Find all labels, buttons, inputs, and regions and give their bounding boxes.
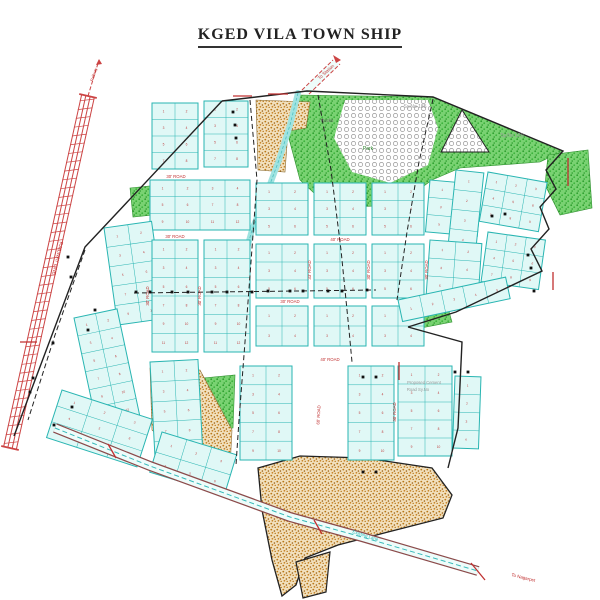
railway-tie bbox=[27, 336, 42, 338]
plot-block: 12345678910 bbox=[348, 366, 394, 460]
plot-number: 3 bbox=[384, 334, 386, 338]
plot-number: 3 bbox=[326, 207, 328, 211]
township-map-page: KGED VILA TOWN SHIP bbox=[0, 0, 600, 600]
survey-dot bbox=[491, 215, 494, 218]
plot-block: 123456789101112 bbox=[152, 240, 198, 352]
plot-number: 5 bbox=[359, 411, 361, 415]
plot-number: 1 bbox=[384, 190, 386, 194]
survey-dot bbox=[467, 371, 470, 374]
survey-dot bbox=[533, 290, 536, 293]
railway-tie bbox=[74, 125, 89, 127]
plot-number: 3 bbox=[384, 207, 386, 211]
plot-number: 4 bbox=[382, 392, 384, 396]
plot-number: 2 bbox=[438, 373, 440, 377]
plot-number: 11 bbox=[214, 341, 218, 345]
survey-dot bbox=[454, 371, 457, 374]
survey-dot bbox=[530, 267, 533, 270]
plot-number: 3 bbox=[268, 207, 270, 211]
map-label: 30' ROAD bbox=[197, 286, 202, 305]
railway-arrowhead bbox=[96, 59, 102, 65]
plot-number: 8 bbox=[186, 304, 188, 308]
plot-number: 6 bbox=[352, 225, 354, 229]
plot-number: 10 bbox=[437, 445, 441, 449]
railway-tie bbox=[56, 204, 71, 206]
plot-number: 1 bbox=[326, 314, 328, 318]
plot-number: 9 bbox=[359, 449, 361, 453]
plot-number: 1 bbox=[268, 190, 270, 194]
plot-number: 4 bbox=[294, 269, 296, 273]
plot-number: 8 bbox=[438, 427, 440, 431]
survey-dot bbox=[67, 256, 70, 259]
plot-number: 1 bbox=[384, 314, 386, 318]
railway-tie bbox=[64, 169, 79, 171]
plot-number: 9 bbox=[411, 445, 413, 449]
plot-number: 5 bbox=[215, 285, 217, 289]
plot-number: 6 bbox=[382, 411, 384, 415]
map-label: Railway bbox=[89, 67, 98, 82]
railway-tie bbox=[62, 178, 77, 180]
survey-dot bbox=[302, 290, 305, 293]
plot-block: 12345678 bbox=[152, 103, 198, 169]
plot-number: 6 bbox=[278, 411, 280, 415]
plot-block: 1234 bbox=[256, 306, 308, 346]
railway-tie bbox=[66, 160, 81, 162]
plot-number: 1 bbox=[411, 373, 413, 377]
plot-number: 1 bbox=[252, 374, 254, 378]
plot-number: 9 bbox=[163, 322, 165, 326]
plot-number: 7 bbox=[252, 430, 254, 434]
plot-number: 2 bbox=[352, 251, 354, 255]
railway-tie bbox=[51, 231, 66, 233]
map-label: Road Sy.No bbox=[407, 387, 430, 392]
railway-tie bbox=[17, 380, 32, 382]
survey-dot bbox=[232, 111, 235, 114]
survey-dot bbox=[32, 377, 35, 380]
survey-dot bbox=[70, 276, 73, 279]
plot-block: 1234 bbox=[452, 376, 480, 449]
railway-tie bbox=[25, 345, 40, 347]
plot-number: 7 bbox=[411, 427, 413, 431]
plot-number: 5 bbox=[214, 140, 216, 144]
plot-number: 6 bbox=[410, 287, 412, 291]
railway-tie bbox=[31, 319, 46, 321]
survey-dot bbox=[211, 291, 214, 294]
plot-block: 12345678 bbox=[204, 101, 248, 167]
plot-number: 9 bbox=[215, 322, 217, 326]
railway-tie bbox=[4, 442, 19, 444]
plot-number: 2 bbox=[236, 107, 238, 111]
plot-number: 6 bbox=[294, 225, 296, 229]
plot-number: 1 bbox=[326, 251, 328, 255]
plot-number: 4 bbox=[294, 334, 296, 338]
plot-number: 2 bbox=[186, 248, 188, 252]
plot-number: 4 bbox=[294, 207, 296, 211]
plot-number: 1 bbox=[268, 251, 270, 255]
township-map: 1234567812345678123456789101112123456789… bbox=[0, 0, 600, 600]
railway-tie bbox=[8, 424, 23, 426]
railway-tie bbox=[23, 354, 38, 356]
plot-number: 10 bbox=[237, 322, 241, 326]
plot-number: 10 bbox=[185, 322, 189, 326]
map-label: Proposed Cement bbox=[407, 380, 442, 385]
railway-tie bbox=[72, 134, 87, 136]
map-label: Park bbox=[363, 146, 374, 152]
plot-number: 7 bbox=[215, 304, 217, 308]
railway-tie bbox=[58, 196, 73, 198]
survey-dot bbox=[527, 254, 530, 257]
plot-number: 6 bbox=[236, 140, 238, 144]
survey-dot bbox=[171, 291, 174, 294]
plot-number: 2 bbox=[186, 109, 188, 113]
survey-dot bbox=[362, 376, 365, 379]
plot-number: 3 bbox=[359, 392, 361, 396]
plot-number: 5 bbox=[163, 285, 165, 289]
railway-layer bbox=[1, 59, 102, 450]
map-label: 30' ROAD bbox=[424, 260, 429, 279]
survey-dot bbox=[341, 290, 344, 293]
plot-number: 6 bbox=[410, 225, 412, 229]
plot-number: 4 bbox=[186, 266, 188, 270]
plot-number: 5 bbox=[326, 225, 328, 229]
plot-number: 6 bbox=[187, 203, 189, 207]
survey-dot bbox=[71, 406, 74, 409]
plot-number: 2 bbox=[238, 248, 240, 252]
plot-number: 6 bbox=[238, 285, 240, 289]
plot-number: 1 bbox=[268, 314, 270, 318]
survey-dot bbox=[289, 290, 292, 293]
railway-tie bbox=[68, 152, 83, 154]
plot-number: 2 bbox=[410, 190, 412, 194]
plot-number: 8 bbox=[236, 157, 238, 161]
plot-block: 123456789 bbox=[479, 172, 547, 232]
plot-number: 6 bbox=[438, 409, 440, 413]
survey-dot bbox=[187, 291, 190, 294]
map-label: 30' ROAD bbox=[166, 174, 185, 179]
plot-number: 4 bbox=[236, 124, 238, 128]
plot-number: 4 bbox=[186, 126, 188, 130]
survey-dot bbox=[267, 290, 270, 293]
plot-number: 3 bbox=[212, 187, 214, 191]
plot-number: 2 bbox=[294, 251, 296, 255]
plot-number: 2 bbox=[382, 374, 384, 378]
plot-number: 6 bbox=[186, 142, 188, 146]
plot-block: 1234 bbox=[314, 306, 366, 346]
plot-number: 1 bbox=[326, 190, 328, 194]
map-label: 30' ROAD bbox=[280, 299, 299, 304]
sand-area bbox=[258, 456, 452, 596]
railway-tie bbox=[70, 143, 85, 145]
railway-tie bbox=[35, 301, 50, 303]
plot-number: 4 bbox=[410, 269, 412, 273]
survey-dot bbox=[52, 342, 55, 345]
plot-block: 123456 bbox=[314, 183, 366, 235]
plot-number: 6 bbox=[186, 285, 188, 289]
map-label: 30' ROAD bbox=[165, 234, 184, 239]
plot-number: 8 bbox=[382, 430, 384, 434]
map-label: Rocks bbox=[321, 118, 334, 123]
railway-tie bbox=[53, 222, 68, 224]
railway-tie bbox=[76, 117, 91, 119]
plot-number: 2 bbox=[410, 251, 412, 255]
plot-number: 3 bbox=[384, 269, 386, 273]
plot-number: 2 bbox=[187, 187, 189, 191]
plot-number: 8 bbox=[237, 203, 239, 207]
survey-dot bbox=[366, 289, 369, 292]
plot-number: 5 bbox=[411, 409, 413, 413]
survey-dot bbox=[226, 291, 229, 294]
survey-dot bbox=[135, 291, 138, 294]
plot-number: 4 bbox=[237, 187, 239, 191]
railway-tie bbox=[29, 327, 44, 329]
survey-dot bbox=[504, 213, 507, 216]
railway-tie bbox=[60, 187, 75, 189]
plot-number: 1 bbox=[162, 187, 164, 191]
plot-number: 1 bbox=[384, 251, 386, 255]
plot-number: 4 bbox=[352, 334, 354, 338]
plot-number: 1 bbox=[359, 374, 361, 378]
plot-number: 10 bbox=[381, 449, 385, 453]
map-label: Sy.No 185 bbox=[404, 104, 427, 110]
plot-number: 2 bbox=[278, 374, 280, 378]
plot-number: 1 bbox=[163, 248, 165, 252]
plot-number: 1 bbox=[215, 248, 217, 252]
plot-number: 8 bbox=[186, 159, 188, 163]
plot-number: 12 bbox=[237, 341, 241, 345]
plot-number: 10 bbox=[277, 449, 281, 453]
plot-block: 123456789101112 bbox=[204, 240, 250, 352]
plot-block: 123456 bbox=[256, 244, 308, 298]
map-label: 60' ROAD bbox=[316, 405, 322, 424]
plot-number: 4 bbox=[352, 207, 354, 211]
survey-dot bbox=[94, 309, 97, 312]
plot-number: 4 bbox=[438, 391, 440, 395]
plot-number: 3 bbox=[326, 334, 328, 338]
plot-number: 11 bbox=[211, 220, 215, 224]
survey-dot bbox=[327, 290, 330, 293]
plot-block: 123456789101112 bbox=[150, 180, 250, 230]
plot-number: 3 bbox=[252, 392, 254, 396]
railway-tie bbox=[80, 99, 95, 101]
map-label: 30' ROAD bbox=[366, 260, 371, 279]
plot-number: 5 bbox=[252, 411, 254, 415]
map-label: 30' ROAD bbox=[392, 402, 397, 421]
survey-dot bbox=[362, 471, 365, 474]
plot-number: 10 bbox=[186, 220, 190, 224]
map-label: 40' ROAD bbox=[320, 357, 339, 362]
plot-number: 2 bbox=[294, 190, 296, 194]
plot-number: 7 bbox=[359, 430, 361, 434]
plot-number: 5 bbox=[162, 203, 164, 207]
railway-tie bbox=[21, 363, 36, 365]
survey-dot bbox=[53, 424, 56, 427]
plot-number: 3 bbox=[214, 124, 216, 128]
map-label: 33' ROAD bbox=[307, 260, 312, 279]
plot-number: 12 bbox=[185, 341, 189, 345]
plot-number: 4 bbox=[238, 266, 240, 270]
plot-number: 7 bbox=[214, 157, 216, 161]
plot-number: 8 bbox=[278, 430, 280, 434]
plot-number: 2 bbox=[294, 314, 296, 318]
plot-number: 3 bbox=[163, 126, 165, 130]
survey-dot bbox=[235, 137, 238, 140]
plot-block: 123456 bbox=[256, 183, 308, 235]
survey-dot bbox=[375, 376, 378, 379]
plot-number: 3 bbox=[215, 266, 217, 270]
railway-tie bbox=[33, 310, 48, 312]
plot-number: 3 bbox=[326, 269, 328, 273]
plot-number: 7 bbox=[212, 203, 214, 207]
plot-number: 8 bbox=[238, 304, 240, 308]
railway-tie bbox=[37, 292, 52, 294]
survey-dot bbox=[234, 124, 237, 127]
railway-tie bbox=[39, 284, 54, 286]
plot-number: 7 bbox=[163, 304, 165, 308]
railway-tie bbox=[6, 433, 21, 435]
railway-tie bbox=[16, 389, 31, 391]
map-label: 30' ROAD bbox=[145, 286, 150, 305]
plot-number: 4 bbox=[352, 269, 354, 273]
plot-number: 12 bbox=[236, 220, 240, 224]
plot-number: 5 bbox=[163, 142, 165, 146]
plot-number: 5 bbox=[268, 225, 270, 229]
plot-number: 2 bbox=[352, 314, 354, 318]
railway-tie bbox=[41, 275, 56, 277]
plot-number: 9 bbox=[162, 220, 164, 224]
plot-number: 3 bbox=[268, 269, 270, 273]
railway-tie bbox=[54, 213, 69, 215]
survey-dot bbox=[375, 471, 378, 474]
plot-block: 12345678910 bbox=[240, 366, 292, 460]
plot-number: 1 bbox=[163, 109, 165, 113]
plot-number: 5 bbox=[384, 287, 386, 291]
railway-tie bbox=[78, 108, 93, 110]
survey-dot bbox=[251, 291, 254, 294]
plot-number: 5 bbox=[384, 225, 386, 229]
survey-dot bbox=[87, 329, 90, 332]
plot-number: 4 bbox=[410, 334, 412, 338]
plot-number: 3 bbox=[163, 266, 165, 270]
railway-tie bbox=[14, 398, 29, 400]
plot-number: 3 bbox=[268, 334, 270, 338]
map-label: Sy.No 190 bbox=[501, 133, 524, 139]
plot-block: 123456 bbox=[372, 183, 424, 235]
plot-number: 11 bbox=[162, 341, 166, 345]
plot-number: 2 bbox=[352, 190, 354, 194]
railway-tie bbox=[19, 371, 34, 373]
plot-number: 9 bbox=[252, 449, 254, 453]
plot-number: 4 bbox=[278, 392, 280, 396]
survey-dot bbox=[29, 391, 32, 394]
map-label: To Nagarpet bbox=[511, 572, 537, 583]
map-label: 40' ROAD bbox=[330, 237, 349, 242]
